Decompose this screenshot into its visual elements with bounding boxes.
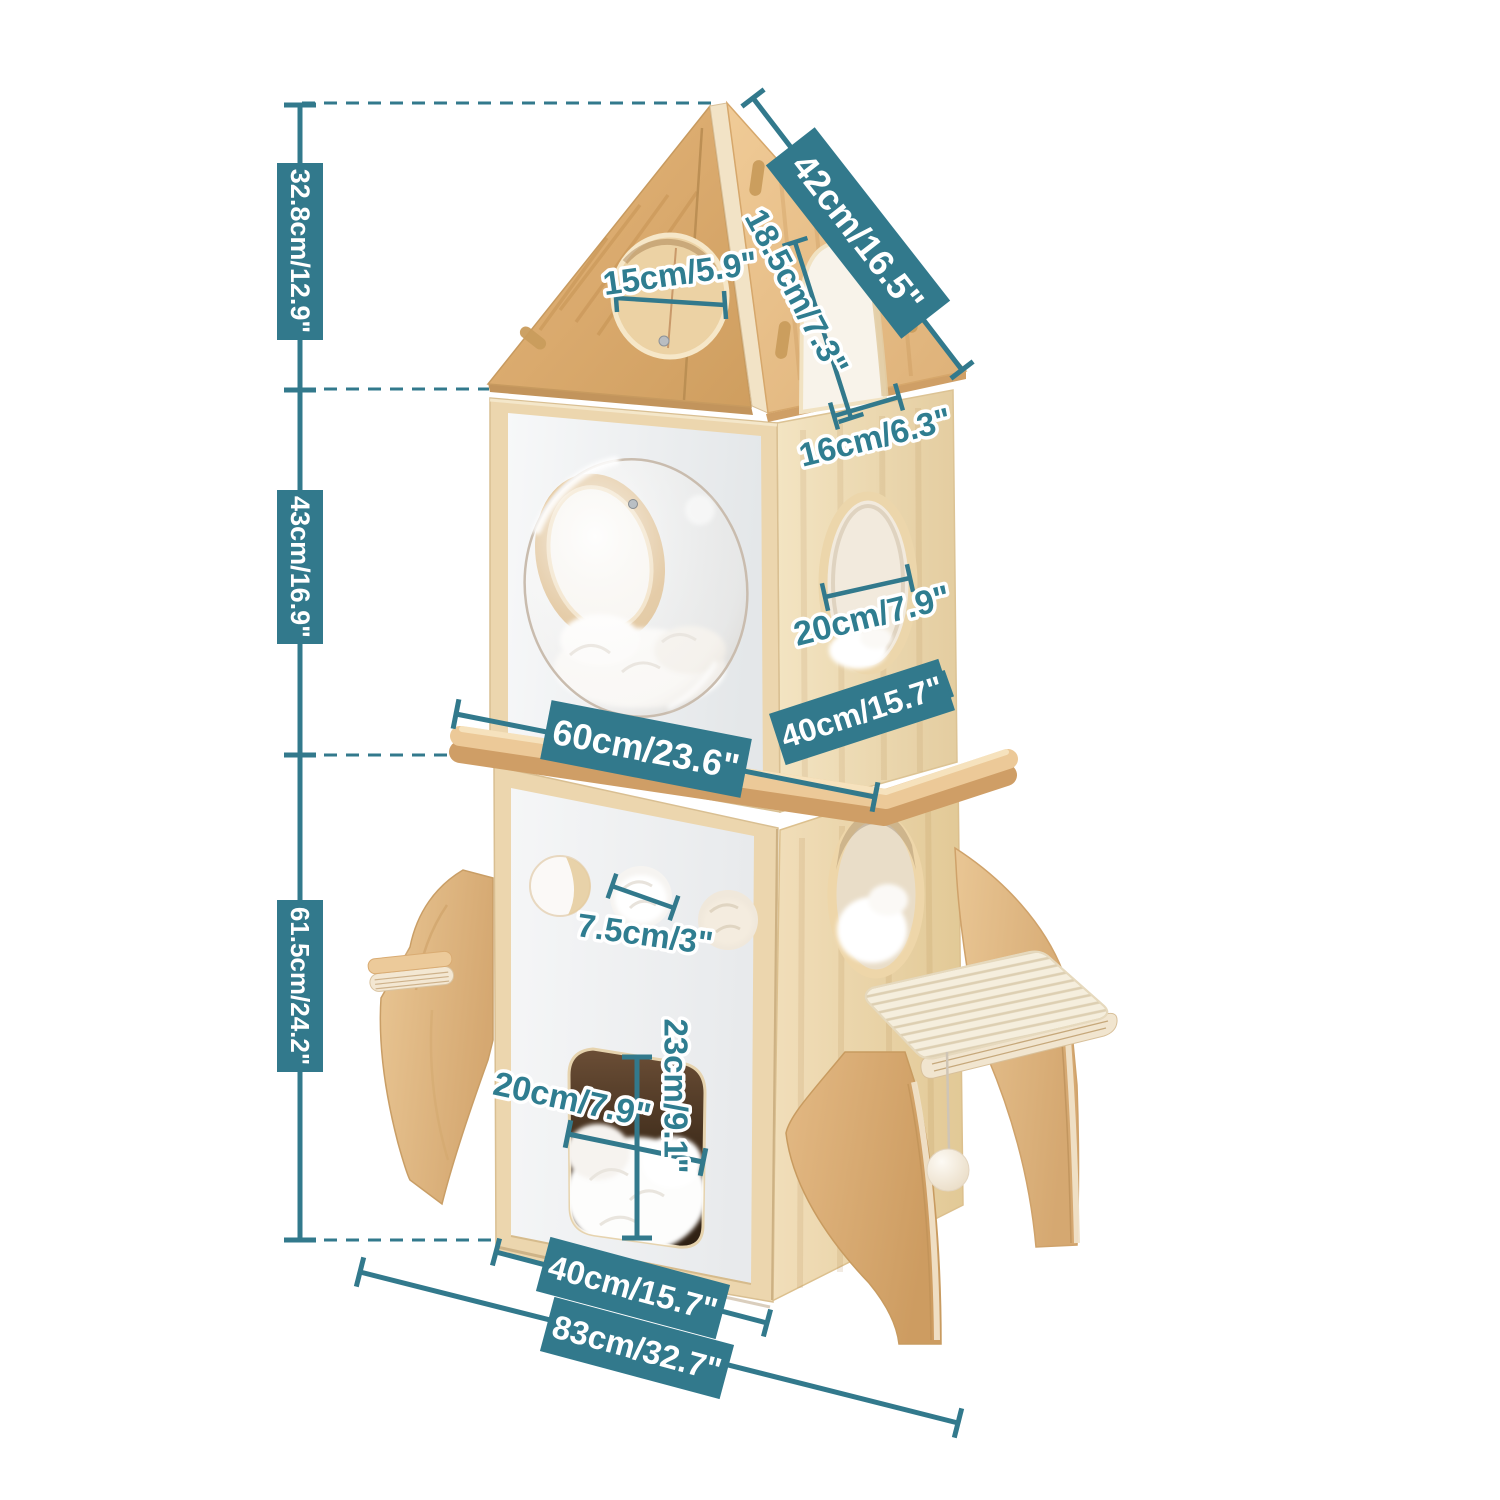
badge-height-top: 32.8cm/12.9" xyxy=(277,163,323,340)
left-fin xyxy=(366,870,493,1204)
rocket-cat-tree-diagram: 32.8cm/12.9" 43cm/16.9" 61.5cm/24.2" 42c… xyxy=(0,0,1500,1500)
dim-label-height-low: 61.5cm/24.2" xyxy=(285,907,315,1065)
dim-label-door-height: 23cm/9.1" xyxy=(658,1018,695,1173)
dim-label-height-mid: 43cm/16.9" xyxy=(285,496,315,638)
right-front-fin xyxy=(786,1052,941,1344)
dimension-diagram-page: 32.8cm/12.9" 43cm/16.9" 61.5cm/24.2" 42c… xyxy=(0,0,1500,1500)
pompom-ball xyxy=(927,1149,969,1191)
bubble-screw xyxy=(629,500,638,509)
dim-label-height-top: 32.8cm/12.9" xyxy=(285,169,315,333)
roof-screw xyxy=(659,336,669,346)
lower-oval-opening xyxy=(832,811,920,974)
badge-height-low: 61.5cm/24.2" xyxy=(277,900,323,1072)
badge-height-mid: 43cm/16.9" xyxy=(277,490,323,644)
